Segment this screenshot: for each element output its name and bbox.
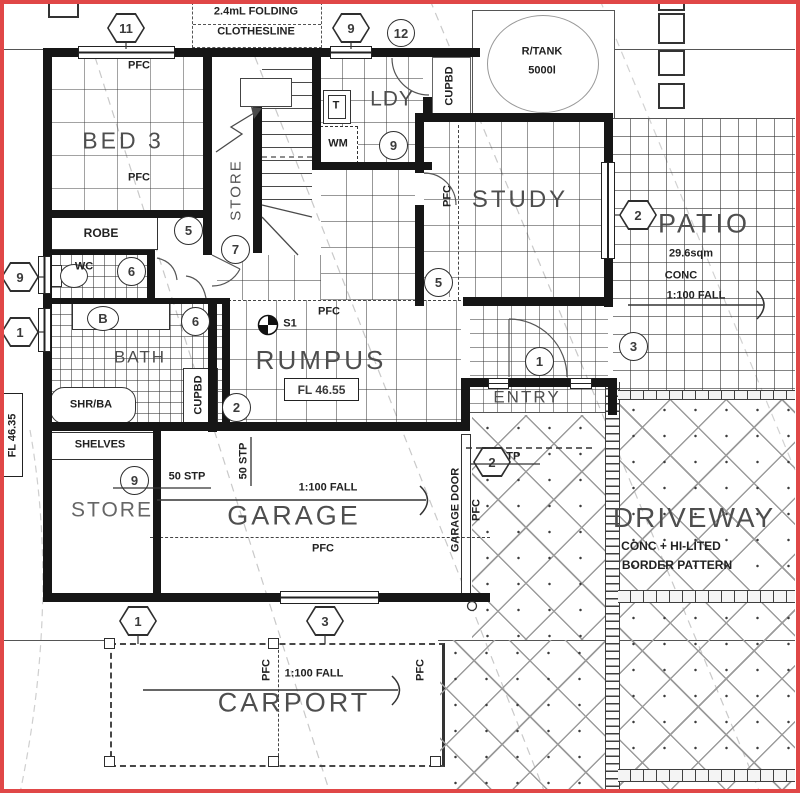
floor-level-value: FL 46.35 [7, 413, 18, 457]
pfc-note: PFC [262, 659, 273, 681]
room-label-bath: BATH [114, 349, 166, 366]
room-label-bed3: BED 3 [82, 130, 163, 153]
window [280, 591, 379, 604]
floor-plan: FL 46.55 FL 46.35 2.4mL FOLDING CLOTHESL… [0, 0, 800, 793]
marker-circle-6: 6 [117, 257, 146, 286]
room-label-store: STORE [71, 500, 153, 521]
wall [253, 100, 262, 253]
pfc-note: PFC [312, 544, 334, 555]
wall [43, 422, 470, 431]
carport-post [104, 638, 115, 649]
wc-label: WC [75, 262, 93, 273]
path-edge-strip [605, 382, 620, 793]
garage-centerline [150, 537, 490, 538]
wall [312, 162, 432, 170]
marker-hexagon-1: 1 [119, 606, 157, 636]
wall [608, 378, 617, 415]
marker-circle-6: 6 [181, 307, 210, 336]
tub-label: T [333, 101, 340, 112]
garage-door-label: GARAGE DOOR [451, 468, 462, 552]
room-label-store-stairs: STORE [229, 159, 244, 220]
room-label-patio: PATIO [658, 211, 750, 238]
marker-circle-5: 5 [424, 268, 453, 297]
room-label-garage: GARAGE [227, 503, 361, 530]
window [570, 378, 592, 389]
pfc-note: PFC [128, 173, 150, 184]
marker-circle-2: 2 [222, 393, 251, 422]
floor-driveway-left-lower [440, 640, 605, 793]
clothesline-label-2: CLOTHESLINE [217, 27, 295, 38]
wall [415, 205, 424, 306]
marker-circle-9: 9 [379, 131, 408, 160]
pfc-note: PFC [318, 307, 340, 318]
room-label-entry: ENTRY [493, 389, 560, 406]
fence-post [658, 13, 685, 44]
wall [461, 387, 470, 431]
fall-note: 1:100 FALL [667, 291, 726, 302]
wall [147, 250, 155, 302]
room-label-study: STUDY [472, 188, 568, 212]
border-pattern-band-top [618, 390, 795, 400]
window [330, 46, 372, 59]
carport-post [430, 756, 441, 767]
wall [43, 250, 155, 255]
cupbd-label: CUPBD [445, 66, 456, 105]
marker-hexagon-9: 9 [332, 13, 370, 43]
wall [463, 297, 613, 306]
marker-circle-12: 12 [387, 19, 415, 47]
wall [43, 298, 230, 304]
marker-basin-b: B [87, 306, 119, 331]
pfc-note: PFC [443, 185, 454, 207]
wall [153, 431, 161, 593]
window [38, 308, 51, 352]
floor-level-value: FL 46.55 [298, 383, 346, 397]
patio-conc-note: CONC [665, 271, 697, 282]
border-pattern-band-bottom [618, 769, 795, 782]
floor-level-badge: FL 46.55 [284, 378, 359, 401]
marker-hexagon-3: 3 [306, 606, 344, 636]
fall-note: 1:100 FALL [299, 483, 358, 494]
wall [203, 48, 212, 255]
window [601, 162, 615, 259]
wall [461, 378, 617, 387]
wall [43, 593, 490, 602]
room-label-driveway: DRIVEWAY [613, 504, 775, 532]
window [38, 256, 51, 294]
driveway-note-1: CONC + HI-LITED [621, 540, 721, 552]
marker-circle-5: 5 [174, 216, 203, 245]
pfc-note: PFC [416, 659, 427, 681]
rtank-label-1: R/TANK [522, 47, 563, 58]
marker-circle-1: 1 [525, 347, 554, 376]
rtank-label-2: 5000l [528, 66, 556, 77]
clothesline-label-1: 2.4mL FOLDING [214, 7, 298, 18]
stair-landing [240, 78, 292, 107]
driveway-note-2: BORDER PATTERN [622, 559, 732, 571]
carport-post [104, 756, 115, 767]
marker-hexagon-11: 11 [107, 13, 145, 43]
room-label-carport: CARPORT [218, 690, 371, 717]
wall [312, 48, 321, 170]
study-centerline [458, 125, 459, 300]
steps-note-50: 50 STP [169, 472, 206, 483]
fence-post [658, 50, 685, 76]
robe-label: ROBE [84, 227, 119, 239]
wall [423, 48, 432, 57]
fall-note: 1:100 FALL [285, 669, 344, 680]
pfc-note: PFC [472, 499, 483, 521]
marker-circle-3: 3 [619, 332, 648, 361]
boundary-line-bottom-left [0, 640, 112, 641]
marker-hexagon-9: 9 [1, 262, 39, 292]
steps-note-50-vert: 50 STP [239, 443, 250, 480]
pfc-note: PFC [128, 61, 150, 72]
window [78, 46, 175, 59]
garage-door-panel [461, 434, 471, 594]
shr-ba-label: SHR/BA [70, 400, 112, 411]
marker-hexagon-1: 1 [1, 317, 39, 347]
shelves-label: SHELVES [75, 440, 126, 451]
marker-circle-9: 9 [120, 466, 149, 495]
wall [415, 113, 424, 173]
wm-label: WM [328, 139, 348, 150]
fence-post [658, 0, 685, 11]
fence-post [658, 83, 685, 109]
room-label-rumpus: RUMPUS [256, 347, 387, 373]
boundary-post [48, 0, 79, 18]
floor-hall-upper [321, 170, 415, 300]
patio-area-note: 29.6sqm [669, 249, 713, 260]
border-pattern-band-mid [618, 590, 795, 603]
cupbd-label: CUPBD [194, 375, 205, 414]
marker-circle-7: 7 [221, 235, 250, 264]
wall [415, 113, 613, 122]
s1-label: S1 [283, 319, 296, 330]
floor-level-badge-boundary: FL 46.35 [2, 393, 23, 477]
room-label-ldy: LDY [370, 89, 414, 110]
